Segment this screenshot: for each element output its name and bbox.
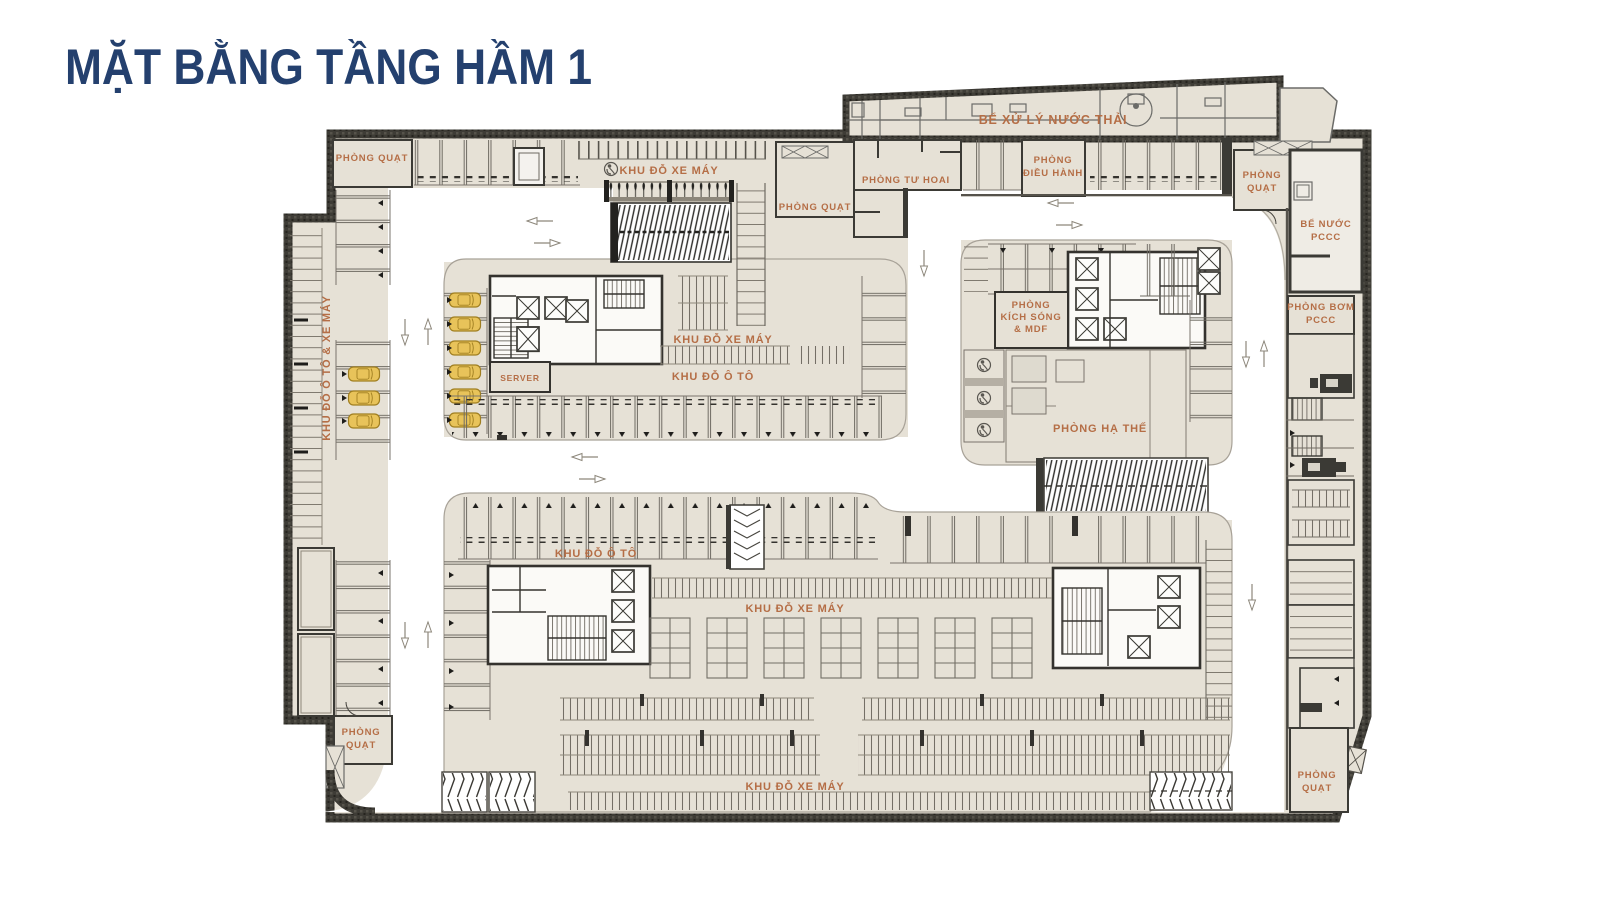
svg-text:KHU ĐỖ XE MÁY: KHU ĐỖ XE MÁY: [673, 333, 772, 346]
svg-text:KHU ĐỖ Ô TÔ: KHU ĐỖ Ô TÔ: [672, 370, 754, 383]
svg-text:PHÒNG BƠM: PHÒNG BƠM: [1287, 301, 1355, 313]
svg-text:ĐIỀU HÀNH: ĐIỀU HÀNH: [1023, 168, 1083, 179]
svg-text:PHÒNG TƯ HOAI: PHÒNG TƯ HOAI: [862, 174, 950, 186]
svg-text:KHU ĐỖ XE MÁY: KHU ĐỖ XE MÁY: [619, 164, 718, 177]
svg-text:PHÒNG: PHÒNG: [1243, 169, 1282, 181]
svg-text:PHÒNG QUẠT: PHÒNG QUẠT: [779, 201, 851, 213]
svg-text:KÍCH SÓNG: KÍCH SÓNG: [1000, 311, 1061, 323]
svg-text:PHÒNG QUẠT: PHÒNG QUẠT: [336, 152, 408, 164]
svg-text:PHÒNG: PHÒNG: [1034, 154, 1073, 166]
svg-text:MẶT BẰNG TẦNG HẦM 1: MẶT BẰNG TẦNG HẦM 1: [65, 39, 592, 95]
svg-text:QUẠT: QUẠT: [1302, 783, 1332, 794]
svg-text:BỂ NƯỚC: BỂ NƯỚC: [1300, 218, 1351, 230]
svg-text:BỂ XỬ LÝ NƯỚC THẢI: BỂ XỬ LÝ NƯỚC THẢI: [979, 112, 1128, 127]
svg-text:PHÒNG: PHÒNG: [342, 726, 381, 738]
svg-text:PCCC: PCCC: [1311, 232, 1341, 243]
svg-text:KHU ĐỖ XE MÁY: KHU ĐỖ XE MÁY: [745, 780, 844, 793]
svg-text:KHU ĐỖ Ô TÔ: KHU ĐỖ Ô TÔ: [555, 547, 637, 560]
svg-text:KHU ĐỖ Ô TÔ & XE MÁY: KHU ĐỖ Ô TÔ & XE MÁY: [320, 295, 333, 441]
svg-text:PHÒNG: PHÒNG: [1298, 769, 1337, 781]
svg-text:QUẠT: QUẠT: [1247, 183, 1277, 194]
svg-text:PHÒNG HẠ THẾ: PHÒNG HẠ THẾ: [1053, 422, 1147, 435]
svg-text:& MDF: & MDF: [1014, 324, 1048, 335]
svg-text:KHU ĐỖ XE MÁY: KHU ĐỖ XE MÁY: [745, 602, 844, 615]
svg-text:PHÒNG: PHÒNG: [1012, 299, 1051, 311]
svg-text:PCCC: PCCC: [1306, 315, 1336, 326]
svg-text:QUẠT: QUẠT: [346, 740, 376, 751]
svg-text:SERVER: SERVER: [500, 373, 540, 383]
